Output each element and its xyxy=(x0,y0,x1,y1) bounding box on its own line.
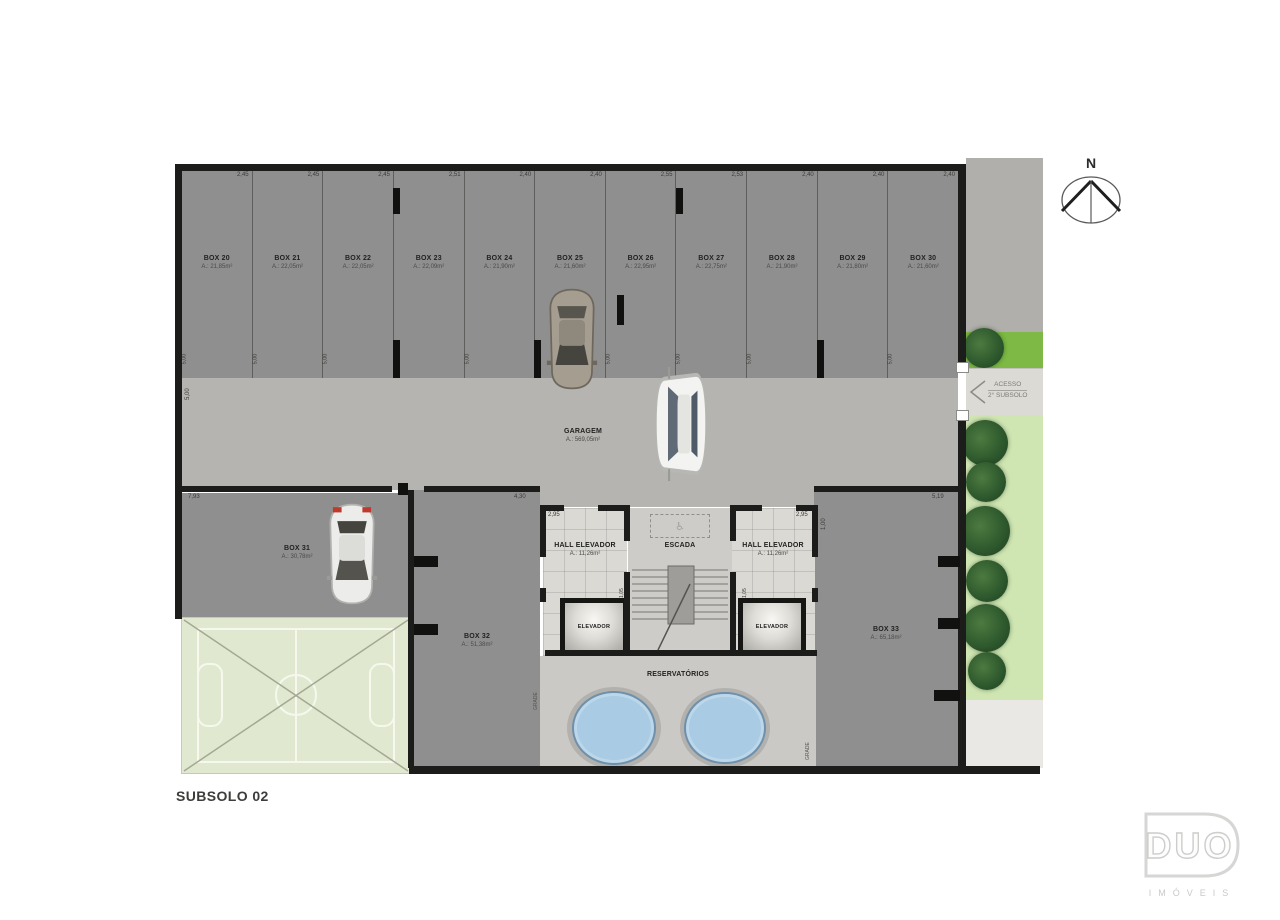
water-tank xyxy=(680,688,770,768)
annotation-label: GRADE xyxy=(533,692,539,710)
room-name: ELEVADOR xyxy=(578,624,611,630)
wall-right-upper xyxy=(958,164,966,364)
room-name: RESERVATÓRIOS xyxy=(600,671,756,678)
bush-icon xyxy=(964,328,1004,368)
dimension-label: 2,45 xyxy=(308,172,320,178)
parking-box-24: 2,40BOX 24A.: 21,90m²5,00 xyxy=(465,171,536,378)
door-marker xyxy=(956,410,969,421)
room-area: A.: 569,05m² xyxy=(540,437,626,443)
hall-right-label: HALL ELEVADOR A.: 11,26m² xyxy=(733,542,813,557)
bush-icon xyxy=(960,506,1010,556)
box-label: BOX 26 xyxy=(606,255,676,262)
dimension-label: 5,00 xyxy=(888,354,894,365)
dimension-label: 5,19 xyxy=(932,494,944,500)
door-marker xyxy=(956,362,969,373)
box-label: BOX 28 xyxy=(747,255,817,262)
box-area: A.: 21,90m² xyxy=(747,264,817,270)
dimension-label: 5,00 xyxy=(746,354,752,365)
bush-icon xyxy=(966,560,1008,602)
dimension-label: 1,05 xyxy=(742,588,748,598)
dimension-label: 2,40 xyxy=(873,172,885,178)
parking-box-27: 2,53BOX 27A.: 22,75m²5,00 xyxy=(676,171,747,378)
north-label: N xyxy=(1086,155,1096,171)
dimension-label: 2,51 xyxy=(449,172,461,178)
dimension-label: 2,45 xyxy=(237,172,249,178)
bush-icon xyxy=(968,652,1006,690)
duo-logo: DUO IMÓVEIS xyxy=(1138,806,1248,906)
room-name: BOX 33 xyxy=(840,626,932,633)
access-driveway: ACESSO 2° SUBSOLO xyxy=(966,368,1043,417)
access-label: ACESSO 2° SUBSOLO xyxy=(988,380,1027,401)
dimension-label: 5,00 xyxy=(185,388,191,400)
dimension-label: 4,30 xyxy=(514,494,526,500)
wall-bottom xyxy=(409,766,1040,774)
escada-stairwell: ♿ ESCADA xyxy=(628,508,732,656)
dimension-label: 5,00 xyxy=(464,354,470,365)
water-tank-surface xyxy=(684,692,765,765)
garagem-label: GARAGEM A.: 569,05m² xyxy=(540,428,626,443)
car-top-icon xyxy=(326,498,378,610)
parking-box-29: 2,40BOX 29A.: 21,80m²5,00 xyxy=(818,171,889,378)
water-tank-surface xyxy=(572,691,657,766)
dimension-label: 2,45 xyxy=(378,172,390,178)
dimension-label: 2,95 xyxy=(796,512,808,518)
access-line1: ACESSO xyxy=(988,380,1027,391)
dimension-label: 7,93 xyxy=(188,494,200,500)
dimension-label: 2,40 xyxy=(520,172,532,178)
dimension-label: 1,00 xyxy=(821,518,827,530)
room-area: A.: 51,38m² xyxy=(432,642,522,648)
court-markings-icon xyxy=(182,618,410,773)
wall-top xyxy=(175,164,965,171)
box33-label: BOX 33 A.: 65,18m² xyxy=(840,626,932,641)
sidewalk-bottom xyxy=(966,700,1043,768)
dimension-label: 2,95 xyxy=(548,512,560,518)
sports-court xyxy=(181,617,411,774)
box-label: BOX 29 xyxy=(818,255,888,262)
room-area: A.: 65,18m² xyxy=(840,635,932,641)
access-line2: 2° SUBSOLO xyxy=(988,391,1027,401)
box-area: A.: 21,90m² xyxy=(465,264,535,270)
parking-box-26: 2,55BOX 26A.: 22,95m²5,00 xyxy=(606,171,677,378)
box-area: A.: 21,60m² xyxy=(535,264,605,270)
dimension-label: 2,40 xyxy=(590,172,602,178)
dimension-label: 5,00 xyxy=(676,354,682,365)
box-area: A.: 21,85m² xyxy=(182,264,252,270)
box-label: BOX 27 xyxy=(676,255,746,262)
reservatorios-label: RESERVATÓRIOS xyxy=(600,671,756,678)
floor-plan-sheet: ACESSO 2° SUBSOLO 2,45BOX 20A.: 21,85m²5… xyxy=(0,0,1280,920)
water-tank xyxy=(567,687,661,769)
sidewalk-top xyxy=(966,158,1043,332)
box-area: A.: 22,05m² xyxy=(253,264,323,270)
dimension-label: 5,00 xyxy=(605,354,611,365)
room-name: GARAGEM xyxy=(540,428,626,435)
room-area: A.: 11,26m² xyxy=(545,551,625,557)
room-name: HALL ELEVADOR xyxy=(545,542,625,549)
dimension-label: 2,40 xyxy=(943,172,955,178)
room-area: A.: 11,26m² xyxy=(733,551,813,557)
box32-label: BOX 32 A.: 51,38m² xyxy=(432,633,522,648)
dimension-label: 5,00 xyxy=(181,354,187,365)
box-area: A.: 22,09m² xyxy=(394,264,464,270)
box-area: A.: 22,75m² xyxy=(676,264,746,270)
box-label: BOX 20 xyxy=(182,255,252,262)
room-name: ELEVADOR xyxy=(756,624,789,630)
box-area: A.: 22,95m² xyxy=(606,264,676,270)
room-name: BOX 32 xyxy=(432,633,522,640)
box-label: BOX 22 xyxy=(323,255,393,262)
dimension-label: 5,00 xyxy=(323,354,329,365)
bush-icon xyxy=(966,462,1006,502)
parking-box-28: 2,40BOX 28A.: 21,90m²5,00 xyxy=(747,171,818,378)
box-area: A.: 22,05m² xyxy=(323,264,393,270)
car-top-icon xyxy=(546,283,598,395)
elevador-left: ELEVADOR xyxy=(560,598,628,656)
parking-box-21: 2,45BOX 21A.: 22,05m²5,00 xyxy=(253,171,324,378)
parking-box-30: 2,40BOX 30A.: 21,60m²5,00 xyxy=(888,171,958,378)
logo-subtitle: IMÓVEIS xyxy=(1149,888,1236,898)
plan-title: SUBSOLO 02 xyxy=(176,788,269,804)
parking-box-20: 2,45BOX 20A.: 21,85m²5,00 xyxy=(182,171,253,378)
elevador-right: ELEVADOR xyxy=(738,598,806,656)
box-label: BOX 24 xyxy=(465,255,535,262)
parking-box-22: 2,45BOX 22A.: 22,05m²5,00 xyxy=(323,171,394,378)
box-area: A.: 21,80m² xyxy=(818,264,888,270)
box-area: A.: 21,60m² xyxy=(888,264,958,270)
dimension-label: 2,55 xyxy=(661,172,673,178)
box-label: BOX 25 xyxy=(535,255,605,262)
hall-left-label: HALL ELEVADOR A.: 11,26m² xyxy=(545,542,625,557)
parking-box-23: 2,51BOX 23A.: 22,09m²5,00 xyxy=(394,171,465,378)
dimension-label: 2,53 xyxy=(731,172,743,178)
access-arrow-icon xyxy=(969,379,987,405)
logo-text: DUO xyxy=(1146,825,1235,866)
north-compass-icon: N xyxy=(1057,152,1127,230)
annotation-label: GRADE xyxy=(805,742,811,760)
wall-right-lower xyxy=(958,414,966,768)
stairs-icon xyxy=(628,508,732,656)
wall-left xyxy=(175,164,182,619)
bush-icon xyxy=(962,604,1010,652)
box-label: BOX 21 xyxy=(253,255,323,262)
box-label: BOX 30 xyxy=(888,255,958,262)
dimension-label: 5,00 xyxy=(252,354,258,365)
box-label: BOX 23 xyxy=(394,255,464,262)
car-top-icon xyxy=(655,365,707,483)
bush-icon xyxy=(962,420,1008,466)
garage-lane-center-patch xyxy=(540,490,816,507)
room-name: HALL ELEVADOR xyxy=(733,542,813,549)
dimension-label: 2,40 xyxy=(802,172,814,178)
